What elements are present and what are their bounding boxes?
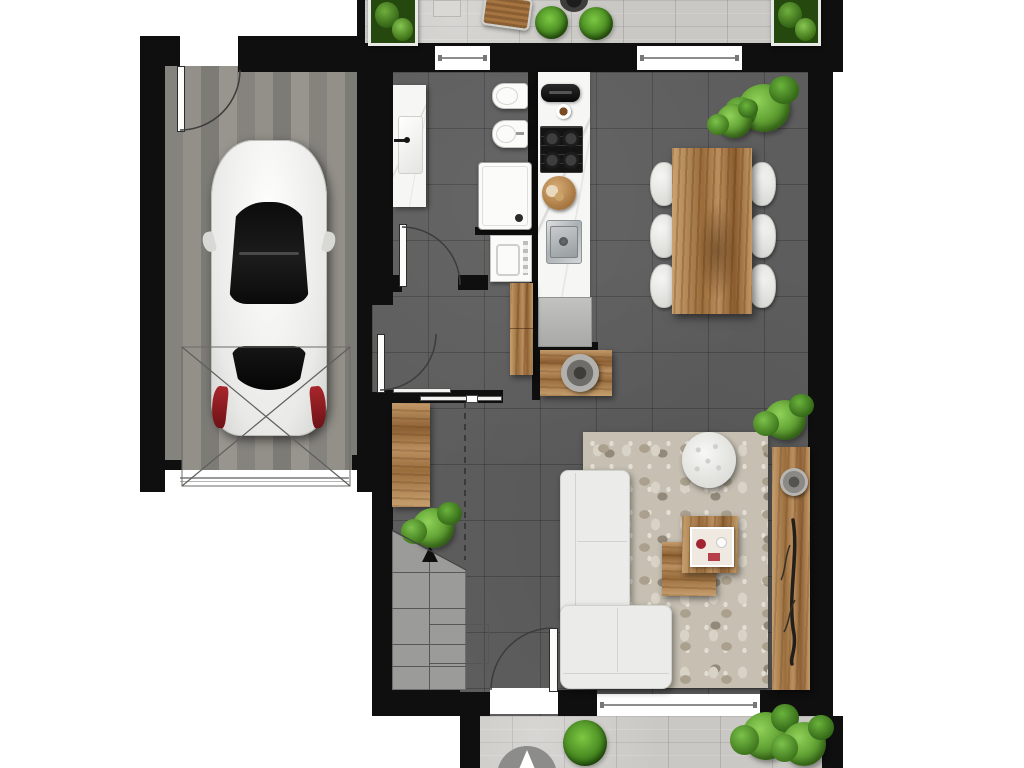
- window-frame-line: [640, 57, 739, 59]
- vanity-basin: [398, 116, 423, 174]
- washing-machine: [490, 235, 532, 282]
- wall-hall-west: [372, 392, 393, 716]
- garage-door-leaf: [177, 66, 185, 132]
- sofa-seam: [563, 673, 669, 674]
- stair-landing-outline: [429, 624, 489, 664]
- bidet: [492, 120, 528, 148]
- white-mug: [716, 537, 727, 548]
- dining-chair: [748, 214, 776, 258]
- coffee-machine-detail: [549, 91, 572, 94]
- sofa-seam: [617, 608, 618, 672]
- wall-terrace-top-left-edge: [357, 0, 365, 43]
- dining-table: [672, 148, 752, 314]
- wall-garage-hall-divider: [357, 305, 372, 477]
- wall-south-stub-b: [460, 692, 490, 716]
- bathroom-door-leaf: [399, 224, 407, 287]
- wall-top-main: [357, 43, 843, 72]
- floor-plan-canvas: [0, 0, 1024, 768]
- stair-up-arrow-icon: [422, 546, 438, 562]
- car: [205, 140, 333, 436]
- window-bathroom: [435, 46, 490, 70]
- planter-box-left: [368, 0, 418, 46]
- washer-controls: [523, 241, 528, 275]
- bush-cluster-bottom-b: [782, 722, 826, 766]
- wall-garage-bathroom-divider: [357, 43, 393, 305]
- wall-bath-south-stub-left: [375, 275, 402, 292]
- sliding-door-handle: [466, 395, 478, 403]
- shower-tray: [478, 162, 532, 230]
- toilet: [492, 83, 528, 109]
- wall-right-outer: [808, 43, 833, 716]
- vanity-faucet-dot: [404, 137, 410, 143]
- serving-tray: [690, 527, 734, 567]
- wall-left-outer: [140, 36, 165, 490]
- window-dining: [637, 46, 742, 70]
- wardrobe-split: [510, 328, 533, 329]
- gas-hob: [540, 126, 583, 173]
- wall-south-stub-c: [558, 690, 597, 716]
- car-roof-highlight: [239, 252, 299, 255]
- wall-south-hall: [372, 690, 460, 716]
- stair-center-rail: [429, 554, 430, 690]
- sofa-seam: [577, 541, 627, 542]
- round-bush: [535, 6, 568, 39]
- vanity-counter: [393, 85, 426, 207]
- console-bowl: [561, 354, 599, 392]
- shower-drain: [515, 214, 523, 222]
- sofa-bottom-arm: [560, 605, 672, 689]
- pouf: [682, 432, 736, 488]
- red-mug: [696, 539, 706, 549]
- kitchen-sink: [546, 220, 582, 264]
- garage-door-line: [180, 481, 349, 482]
- hall-desk: [392, 403, 430, 507]
- wardrobe-cabinet: [510, 283, 533, 375]
- stone-pad: [433, 0, 461, 17]
- plant-living: [764, 400, 806, 440]
- terrace-door-opening: [490, 688, 558, 714]
- window-frame-line: [600, 704, 757, 706]
- terrace-door-leaf: [549, 628, 558, 692]
- garage-door-opening: [165, 470, 357, 492]
- dining-chair: [748, 264, 776, 308]
- hall-door-leaf: [377, 334, 385, 393]
- wall-garage-top-right: [238, 36, 360, 72]
- sofa-vertical-arm: [560, 470, 630, 617]
- toilet-seat: [496, 87, 518, 105]
- wall-bath-south-stub-right: [458, 275, 488, 290]
- sideboard-bowl: [780, 468, 808, 496]
- washer-door: [496, 244, 520, 276]
- bread-item: [555, 192, 564, 201]
- round-bush: [579, 7, 613, 40]
- garage-door-line: [180, 477, 349, 479]
- red-napkin: [708, 553, 720, 561]
- coffee-machine: [541, 84, 580, 102]
- sofa-seam: [575, 473, 576, 614]
- bidet-bowl: [496, 125, 516, 143]
- planter-box-right: [771, 0, 821, 46]
- plant-hall: [412, 508, 454, 548]
- cutting-board: [542, 176, 576, 210]
- sliding-door-rail-lower: [420, 396, 502, 401]
- window-frame-line: [438, 57, 487, 59]
- kitchen-base-cabinet: [538, 297, 592, 347]
- sink-drain: [559, 237, 568, 246]
- round-bush-bottom: [563, 720, 607, 766]
- window-living: [597, 694, 760, 716]
- bidet-tap: [516, 132, 524, 135]
- sliding-door-rail-upper: [393, 388, 451, 393]
- wall-terrace-bottom-left-stub: [460, 716, 480, 768]
- espresso-cup: [556, 104, 571, 119]
- garage-pedestrian-door-opening: [180, 36, 238, 66]
- plant-dining-small: [716, 104, 752, 138]
- dining-chair: [748, 162, 776, 206]
